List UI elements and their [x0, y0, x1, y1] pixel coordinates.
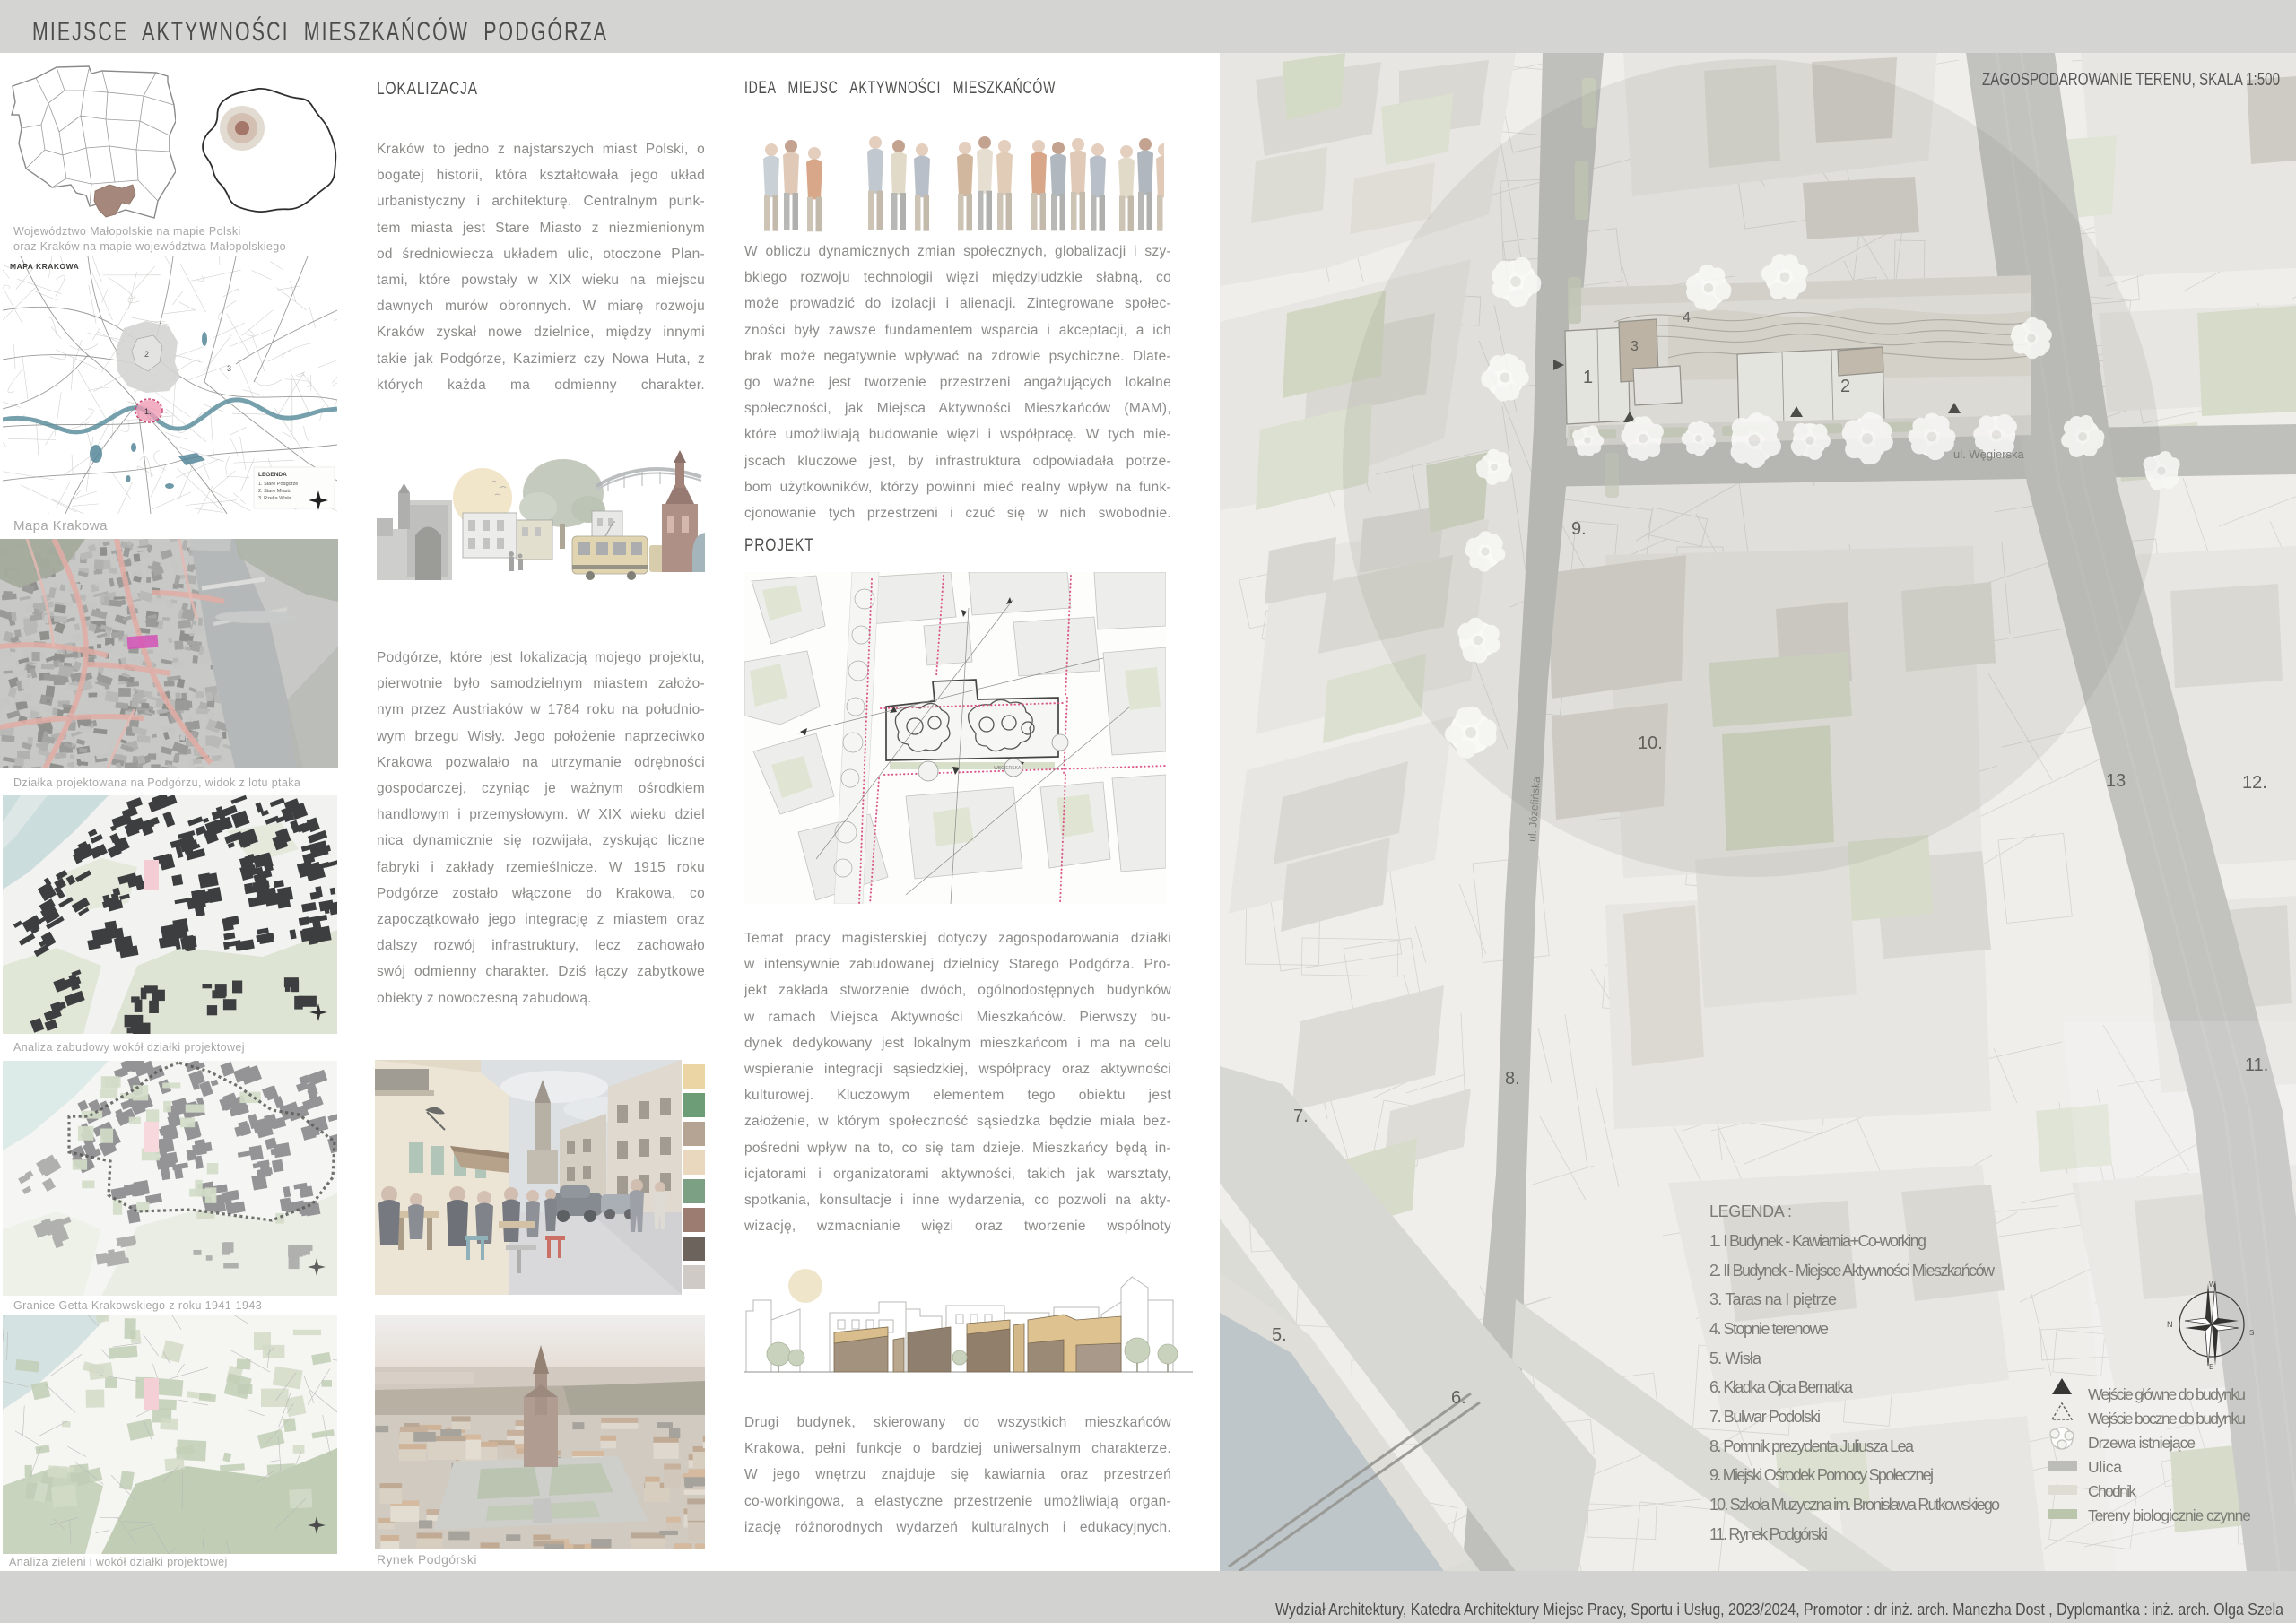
svg-text:3. Rzeka Wisła: 3. Rzeka Wisła [258, 496, 292, 501]
svg-text:MAPA KRAKOWA: MAPA KRAKOWA [10, 262, 79, 271]
svg-text:2. Stare Miasto: 2. Stare Miasto [258, 489, 291, 494]
svg-text:2: 2 [144, 350, 149, 359]
svg-text:1. Stare Podgórze: 1. Stare Podgórze [258, 482, 298, 487]
svg-text:3: 3 [227, 364, 231, 373]
svg-text:1.: 1. [144, 407, 152, 416]
svg-text:WĘGIERSKA: WĘGIERSKA [994, 766, 1022, 771]
svg-text:LEGENDA: LEGENDA [258, 472, 287, 478]
